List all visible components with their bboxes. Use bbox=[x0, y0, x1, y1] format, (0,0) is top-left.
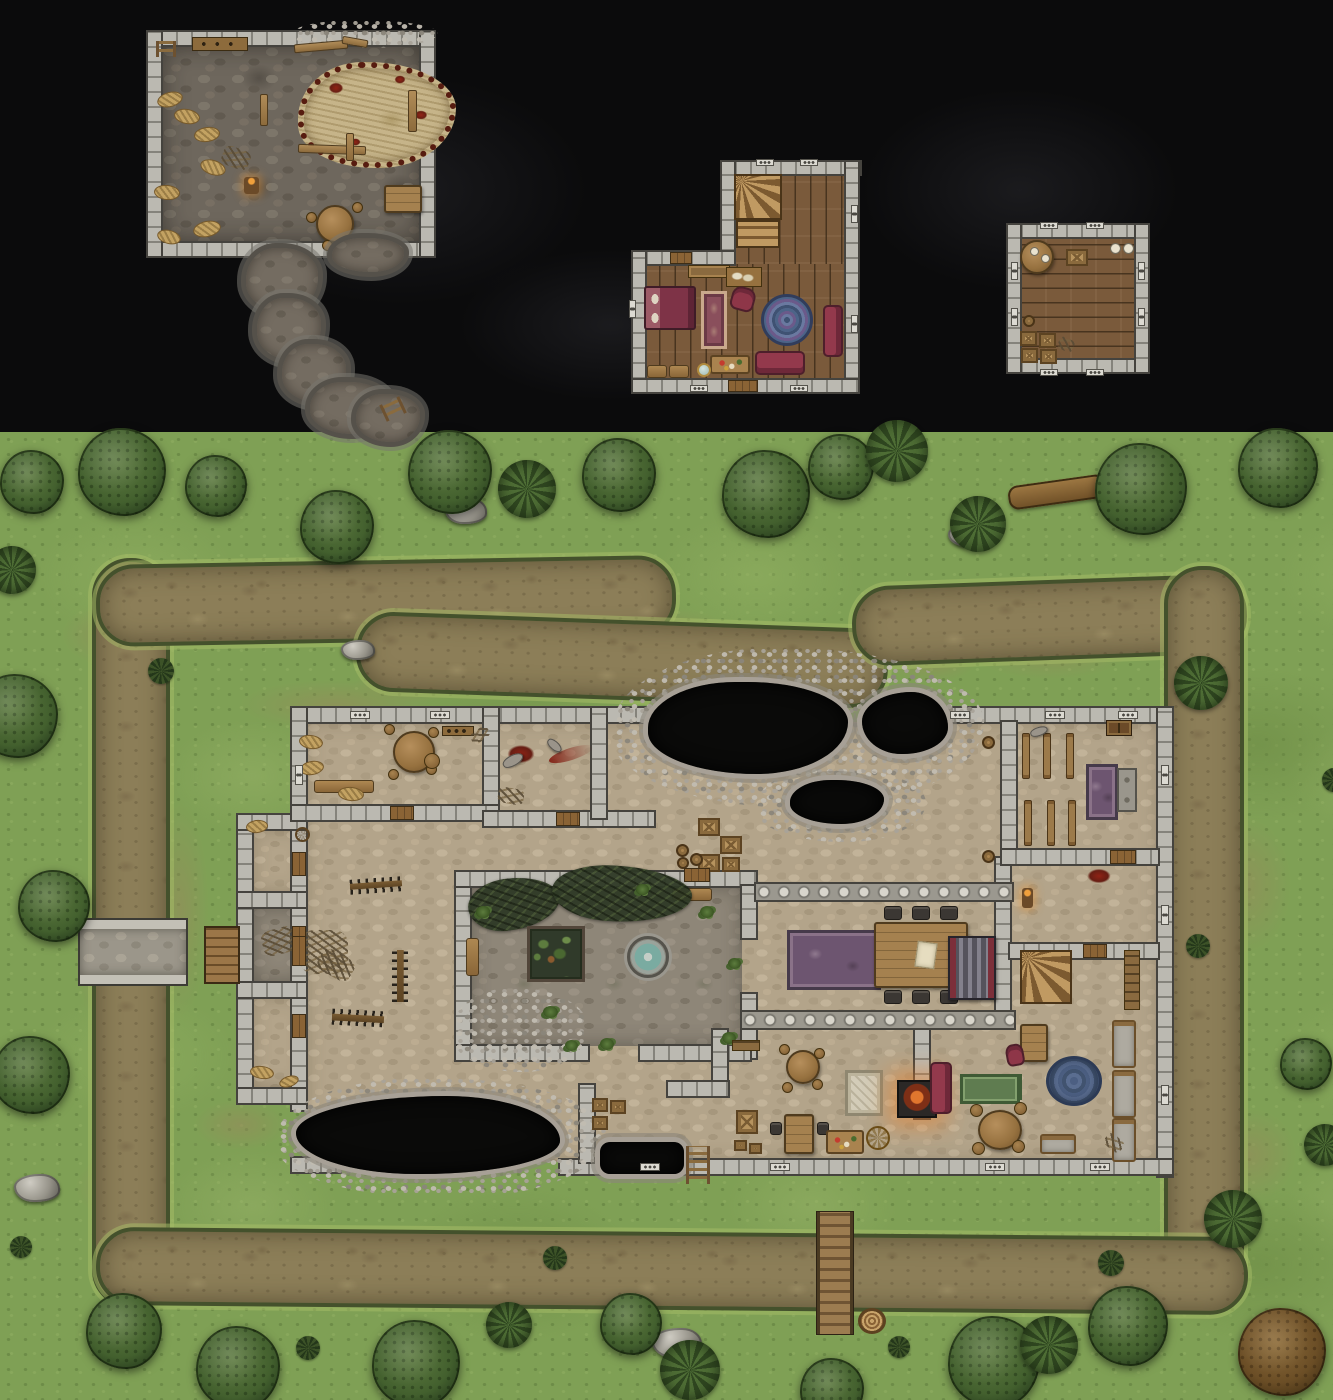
stone-bridge bbox=[80, 920, 186, 984]
window bbox=[1161, 1085, 1169, 1105]
stool bbox=[428, 727, 439, 738]
weed-tuft bbox=[728, 958, 741, 969]
door bbox=[292, 1014, 306, 1038]
sofa bbox=[755, 351, 805, 375]
weed-tuft bbox=[700, 906, 714, 918]
tree bbox=[582, 438, 656, 512]
stone-wall bbox=[668, 1082, 728, 1096]
window bbox=[640, 1163, 660, 1171]
plate bbox=[1041, 254, 1050, 263]
door bbox=[292, 936, 306, 966]
cot bbox=[1112, 1020, 1136, 1068]
shelf bbox=[1124, 950, 1140, 1010]
desk bbox=[726, 267, 762, 287]
loose-plank bbox=[408, 90, 417, 132]
stone-wall bbox=[1002, 722, 1016, 854]
tree bbox=[808, 434, 874, 500]
spiky-shrub bbox=[866, 420, 928, 482]
window bbox=[950, 711, 970, 719]
tree bbox=[0, 450, 64, 514]
tree bbox=[1095, 443, 1187, 535]
spike-barricade bbox=[392, 950, 408, 1002]
window bbox=[1040, 222, 1058, 229]
weed-tuft bbox=[543, 1006, 558, 1018]
plate bbox=[1110, 243, 1121, 254]
window bbox=[1118, 711, 1138, 719]
chair bbox=[770, 1122, 782, 1135]
palisade-fence bbox=[204, 926, 240, 984]
cot bbox=[1040, 1134, 1076, 1154]
stone-wall bbox=[1008, 225, 1148, 237]
stone-wall bbox=[148, 32, 161, 256]
crate bbox=[592, 1098, 608, 1112]
weapon-rack bbox=[192, 37, 248, 51]
tree bbox=[18, 870, 90, 942]
fountain bbox=[627, 936, 669, 978]
crate bbox=[720, 836, 742, 854]
window bbox=[1086, 222, 1104, 229]
torch-stand bbox=[1022, 888, 1033, 908]
mirror bbox=[697, 363, 711, 377]
door bbox=[292, 852, 306, 876]
purple-rug bbox=[787, 930, 881, 990]
table bbox=[784, 1114, 814, 1154]
autumn-tree bbox=[1238, 1308, 1326, 1396]
tree bbox=[722, 450, 810, 538]
tree bbox=[372, 1320, 460, 1400]
pale-rug bbox=[845, 1070, 883, 1116]
plate bbox=[1030, 247, 1039, 256]
bed bbox=[644, 286, 696, 330]
grass-tuft bbox=[1098, 1250, 1124, 1276]
grass-tuft bbox=[296, 1336, 320, 1360]
paper-sheet bbox=[914, 941, 937, 970]
window bbox=[350, 711, 370, 719]
stool bbox=[352, 202, 363, 213]
blood-stain bbox=[394, 75, 406, 84]
dresser bbox=[688, 265, 730, 278]
weed-tuft bbox=[476, 906, 490, 918]
door bbox=[556, 812, 580, 826]
crate bbox=[734, 1140, 747, 1151]
stool bbox=[782, 1082, 793, 1093]
spiky-shrub bbox=[1020, 1316, 1078, 1374]
cot bbox=[1112, 1070, 1136, 1118]
barrel bbox=[982, 736, 995, 749]
window bbox=[985, 1163, 1005, 1171]
stone-wall bbox=[722, 162, 734, 264]
tree bbox=[1280, 1038, 1332, 1090]
window bbox=[1011, 308, 1018, 326]
set-table bbox=[826, 1130, 864, 1154]
window bbox=[1161, 765, 1169, 785]
tree bbox=[78, 428, 166, 516]
loose-plank bbox=[346, 133, 354, 161]
window bbox=[1138, 262, 1145, 280]
door bbox=[670, 252, 692, 264]
stool bbox=[812, 1079, 823, 1090]
door bbox=[1110, 850, 1136, 864]
barrel bbox=[690, 853, 703, 866]
grass-tuft bbox=[10, 1236, 32, 1258]
ladder bbox=[156, 41, 176, 57]
crate bbox=[592, 1116, 608, 1130]
pew bbox=[1024, 800, 1032, 846]
staircase bbox=[736, 220, 780, 248]
grass-tuft bbox=[1186, 934, 1210, 958]
stool bbox=[388, 769, 399, 780]
chair bbox=[912, 990, 930, 1004]
stool bbox=[1014, 1102, 1027, 1115]
window bbox=[1045, 711, 1065, 719]
cave-passage bbox=[332, 238, 404, 272]
stool bbox=[972, 1142, 985, 1155]
crate bbox=[736, 1110, 758, 1134]
window bbox=[629, 300, 636, 318]
round-blue-rug bbox=[1046, 1056, 1102, 1106]
window bbox=[430, 711, 450, 719]
collapse-pit bbox=[648, 682, 848, 774]
stool bbox=[814, 1048, 825, 1059]
battle-map bbox=[0, 0, 1333, 1400]
organ bbox=[948, 936, 996, 1000]
table bbox=[384, 185, 422, 213]
crate bbox=[749, 1143, 762, 1154]
bench bbox=[669, 365, 689, 378]
trench-segment bbox=[96, 1227, 1249, 1315]
stool bbox=[779, 1044, 790, 1055]
ornate-rug bbox=[701, 291, 727, 349]
stone-wall bbox=[592, 708, 606, 818]
stone-wall bbox=[238, 1089, 306, 1103]
ladder bbox=[686, 1146, 710, 1184]
sofa bbox=[823, 305, 843, 357]
altar bbox=[1117, 768, 1137, 812]
blood-stain bbox=[1086, 868, 1112, 884]
grass-tuft bbox=[543, 1246, 567, 1270]
tree-stump bbox=[858, 1308, 886, 1334]
chair bbox=[912, 906, 930, 920]
set-table bbox=[710, 355, 750, 374]
winding-staircase bbox=[1020, 950, 1072, 1004]
window bbox=[295, 765, 303, 785]
window bbox=[756, 159, 774, 166]
stone-wall bbox=[238, 815, 252, 1103]
spike-barricade bbox=[332, 1009, 385, 1028]
blood-stain bbox=[328, 82, 344, 94]
window bbox=[770, 1163, 790, 1171]
spiky-shrub bbox=[498, 460, 556, 518]
tree bbox=[600, 1293, 662, 1355]
stool bbox=[970, 1104, 983, 1117]
sofa bbox=[930, 1062, 952, 1114]
chair bbox=[884, 990, 902, 1004]
pew bbox=[1066, 733, 1074, 779]
stool bbox=[424, 753, 440, 769]
pew bbox=[1047, 800, 1055, 846]
window bbox=[851, 205, 858, 223]
barrel bbox=[1023, 315, 1035, 327]
loose-plank bbox=[260, 94, 268, 126]
green-rug bbox=[960, 1074, 1020, 1104]
arched-wall bbox=[756, 884, 1012, 900]
tree bbox=[1088, 1286, 1168, 1366]
window bbox=[1011, 262, 1018, 280]
window bbox=[790, 385, 808, 392]
stone-wall bbox=[1008, 225, 1020, 372]
bench bbox=[647, 365, 667, 378]
pew bbox=[1022, 733, 1030, 779]
collapse-pit bbox=[862, 692, 948, 754]
grass-tuft bbox=[888, 1336, 910, 1358]
bench bbox=[466, 938, 479, 976]
spiky-shrub bbox=[950, 496, 1006, 552]
collapse-pit bbox=[296, 1096, 560, 1174]
spiky-shrub bbox=[1204, 1190, 1262, 1248]
chest bbox=[1106, 720, 1132, 736]
pew bbox=[1043, 733, 1051, 779]
crate bbox=[1039, 333, 1056, 348]
chair bbox=[940, 906, 958, 920]
barrel bbox=[676, 844, 689, 857]
spiky-shrub bbox=[660, 1340, 720, 1400]
stone-wall bbox=[484, 708, 498, 820]
window bbox=[800, 159, 818, 166]
door bbox=[728, 380, 758, 392]
stone-wall bbox=[292, 708, 664, 722]
rubble-field bbox=[452, 988, 588, 1072]
gilded-wheel bbox=[866, 1126, 890, 1150]
window bbox=[1161, 905, 1169, 925]
crate bbox=[1021, 348, 1038, 363]
tree bbox=[196, 1326, 280, 1400]
stone-wall bbox=[742, 886, 756, 938]
window bbox=[1086, 369, 1104, 376]
stone-wall bbox=[238, 893, 306, 907]
crate bbox=[610, 1100, 626, 1114]
pew bbox=[1068, 800, 1076, 846]
tree bbox=[185, 455, 247, 517]
shelf bbox=[732, 1040, 760, 1051]
plank-bridge bbox=[817, 1212, 853, 1334]
stone-wall bbox=[722, 162, 860, 174]
boulder bbox=[341, 640, 375, 660]
crate bbox=[698, 818, 720, 836]
plate bbox=[1123, 243, 1134, 254]
stone-wall bbox=[846, 162, 858, 392]
spiky-shrub bbox=[486, 1302, 532, 1348]
torch-stand bbox=[244, 177, 259, 194]
winding-staircase bbox=[734, 174, 782, 220]
stone-wall bbox=[238, 983, 306, 997]
spiky-shrub bbox=[1174, 656, 1228, 710]
window bbox=[690, 385, 708, 392]
window bbox=[851, 315, 858, 333]
arched-wall bbox=[742, 1012, 1014, 1028]
window bbox=[1138, 308, 1145, 326]
weed-tuft bbox=[565, 1040, 578, 1051]
stone-wall bbox=[1136, 225, 1148, 372]
mandala-rug bbox=[761, 294, 813, 346]
tree bbox=[1238, 428, 1318, 508]
crate bbox=[1066, 249, 1088, 266]
boulder bbox=[14, 1174, 60, 1202]
tree bbox=[300, 490, 374, 564]
grass-tuft bbox=[148, 658, 174, 684]
crate bbox=[1020, 331, 1037, 346]
crate bbox=[1040, 349, 1057, 364]
door bbox=[1083, 944, 1107, 958]
weed-tuft bbox=[600, 1038, 614, 1050]
chair bbox=[884, 906, 902, 920]
door bbox=[684, 868, 710, 882]
weed-tuft bbox=[636, 884, 649, 895]
stool bbox=[306, 212, 317, 223]
purple-rug bbox=[1086, 764, 1118, 820]
garden-plot bbox=[527, 926, 585, 982]
door bbox=[390, 806, 414, 820]
stool bbox=[384, 724, 395, 735]
barrel bbox=[982, 850, 995, 863]
crate bbox=[722, 857, 740, 872]
window bbox=[1040, 369, 1058, 376]
collapse-pit bbox=[790, 780, 884, 824]
stool bbox=[322, 240, 333, 251]
stool bbox=[1012, 1140, 1025, 1153]
tree bbox=[86, 1293, 162, 1369]
window bbox=[1090, 1163, 1110, 1171]
tree bbox=[408, 430, 492, 514]
basket bbox=[295, 827, 310, 842]
